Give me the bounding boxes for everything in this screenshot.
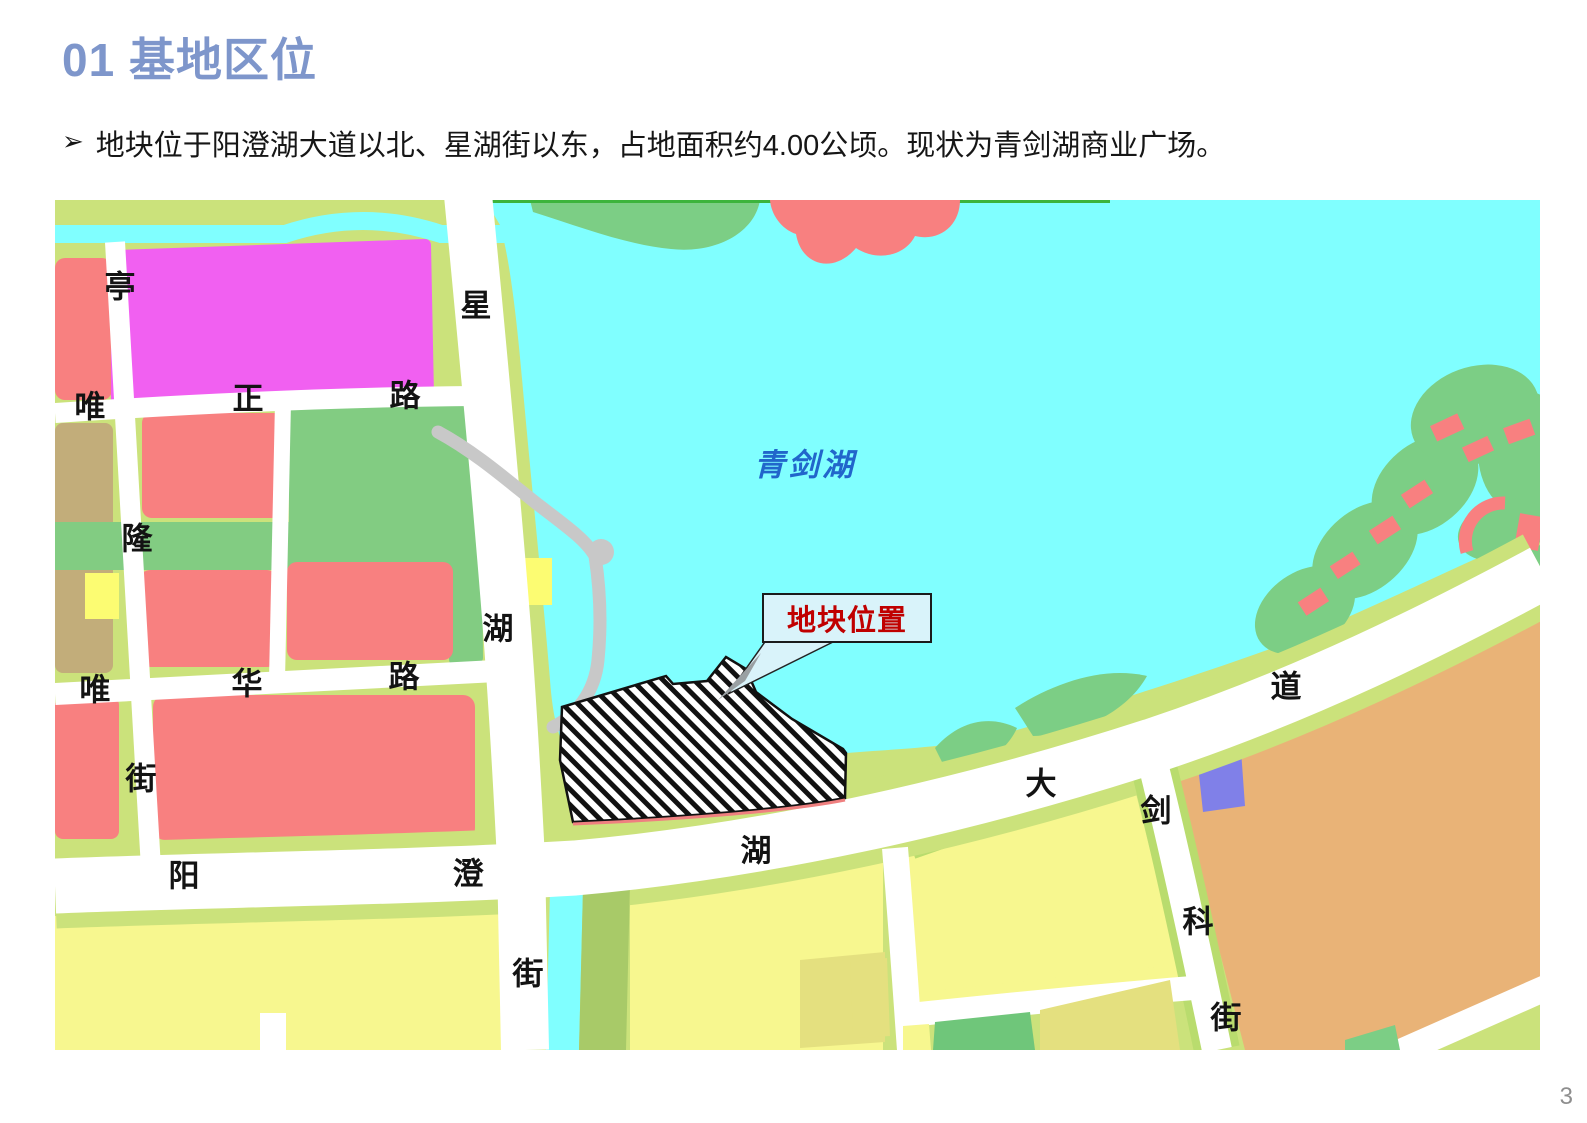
stream-south [546,888,583,1050]
page-number: 3 [1560,1083,1573,1111]
block-red-3 [140,570,277,667]
block-red-1 [55,258,112,400]
road-label: 华 [232,669,263,700]
block-khaki-left [850,958,890,1038]
lake-name-label: 青剑湖 [754,440,856,485]
bullet-arrow-icon: ➢ [62,122,84,160]
stream-verge-olive [579,884,630,1050]
block-red-5 [55,697,119,839]
road-label: 唯 [80,675,111,706]
site-callout-box: 地块位置 [762,593,932,643]
site-callout-text: 地块位置 [787,597,907,639]
road-label: 大 [1026,769,1057,800]
road-label: 街 [1211,1003,1242,1034]
road-label: 湖 [483,614,514,645]
road-label: 道 [1271,672,1302,703]
road-label: 正 [233,384,264,415]
road-label: 街 [126,764,157,795]
slide-page: 01 基地区位 ➢ 地块位于阳澄湖大道以北、星湖街以东，占地面积约4.00公顷。… [0,0,1587,1123]
road-label: 阳 [169,861,200,892]
bullet-line: ➢ 地块位于阳澄湖大道以北、星湖街以东，占地面积约4.00公顷。现状为青剑湖商业… [62,122,1522,164]
road-label: 路 [390,381,421,412]
road-label: 街 [513,959,544,990]
green-strip-row [55,522,293,570]
page-title: 01 基地区位 [62,24,317,90]
road-label: 星 [461,291,492,322]
road-label: 湖 [741,836,772,867]
road-stub-notch [260,1013,286,1050]
road-label: 科 [1183,907,1214,938]
block-red-4 [287,562,453,660]
bullet-text: 地块位于阳澄湖大道以北、星湖街以东，占地面积约4.00公顷。现状为青剑湖商业广场… [96,122,1225,164]
road-label: 唯 [75,392,106,423]
block-red-2 [142,413,288,518]
block-yellow-sliver [903,1024,931,1050]
road-label: 剑 [1141,796,1172,827]
road-minor-vertical [277,402,283,680]
road-label: 隆 [122,524,153,555]
road-label: 澄 [453,859,484,890]
block-magenta [117,245,428,402]
road-label: 路 [389,662,420,693]
block-yellow-small-left [85,573,119,619]
block-red-6 [153,695,475,840]
road-label: 亭 [105,272,136,303]
gray-path-knob [588,539,614,565]
